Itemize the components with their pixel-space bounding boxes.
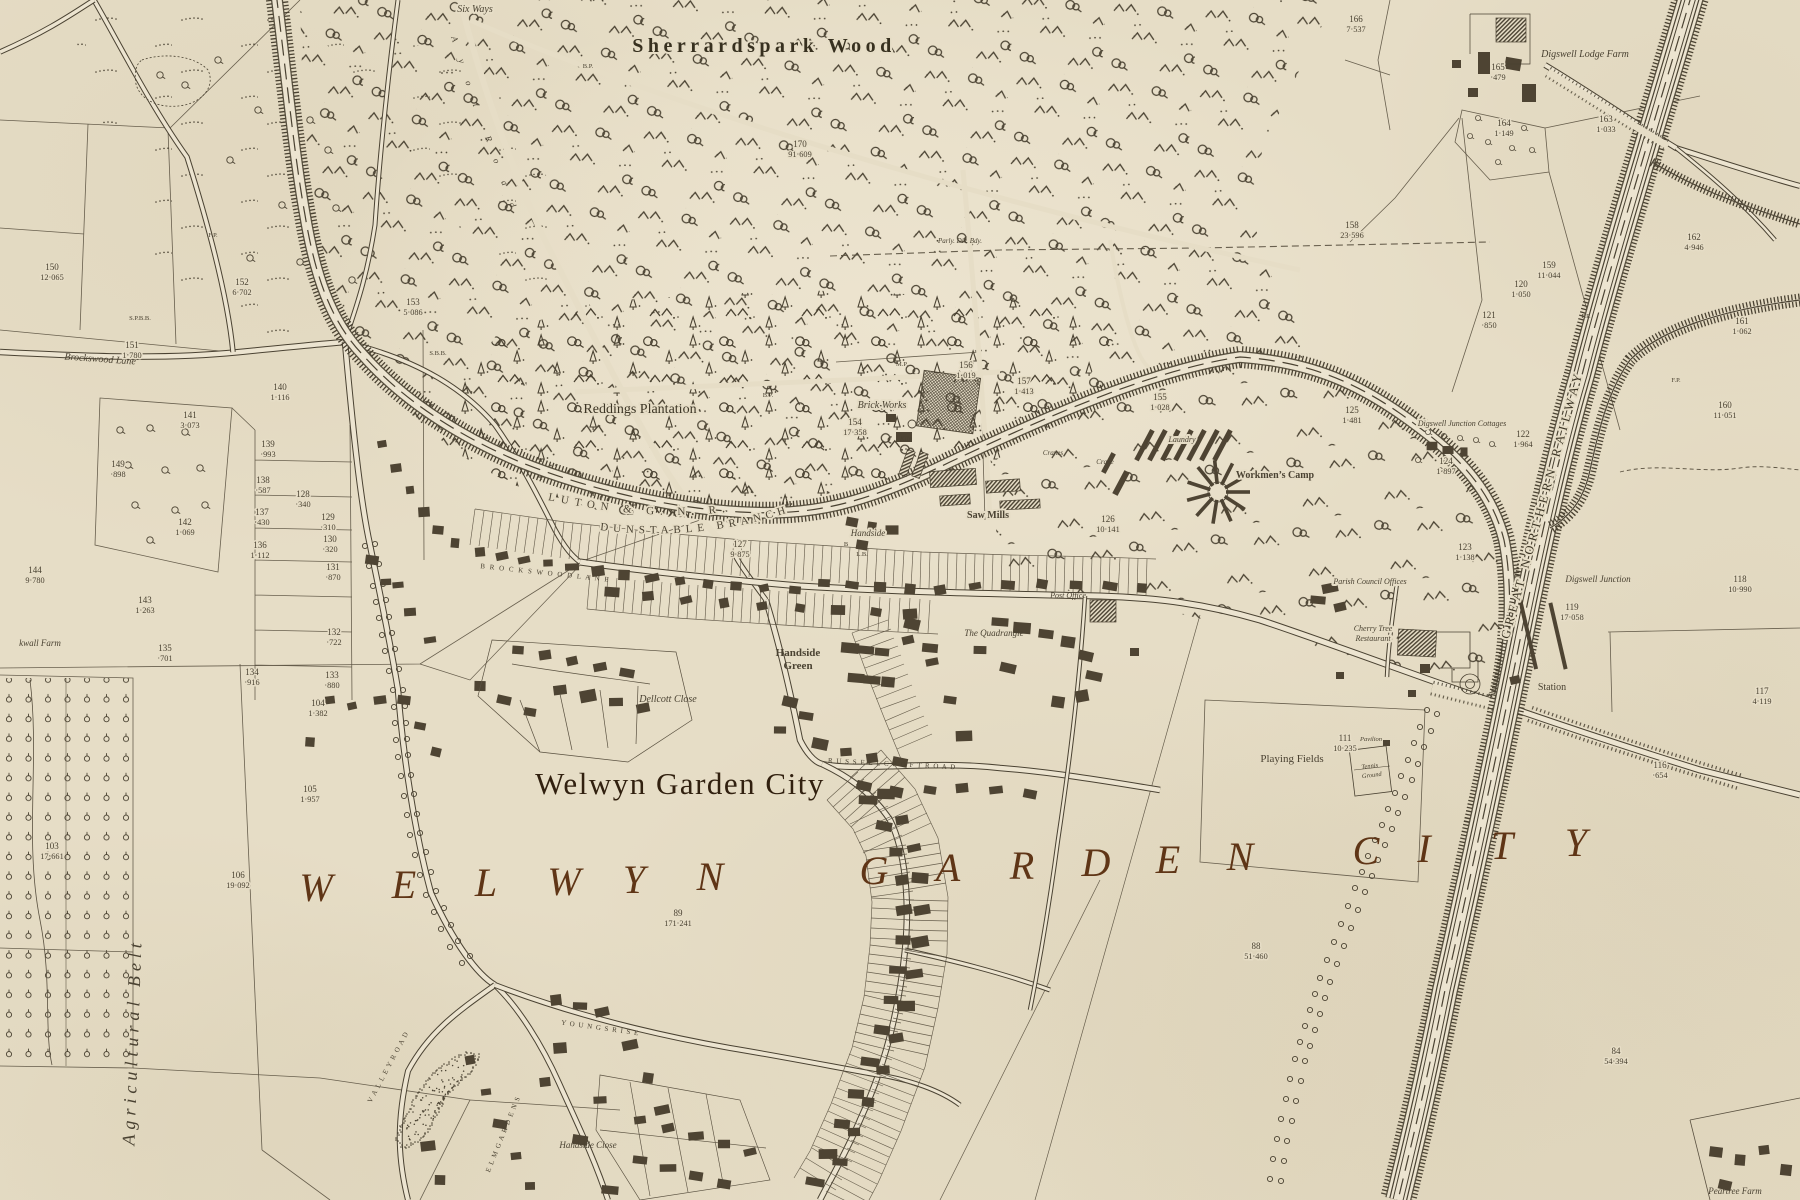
svg-text:W: W: [547, 859, 584, 904]
svg-text:161: 161: [1735, 316, 1749, 326]
svg-text:134: 134: [245, 667, 259, 677]
svg-text:152: 152: [235, 277, 249, 287]
svg-text:17·358: 17·358: [843, 428, 866, 437]
svg-text:143: 143: [138, 595, 152, 605]
svg-text:C: C: [1353, 828, 1381, 873]
svg-text:1·112: 1·112: [251, 551, 270, 560]
svg-text:1·263: 1·263: [135, 606, 154, 615]
svg-text:Parly. Div. Bdy.: Parly. Div. Bdy.: [937, 237, 982, 245]
svg-text:166: 166: [1349, 14, 1363, 24]
svg-text:103: 103: [45, 841, 59, 851]
svg-text:120: 120: [1514, 279, 1528, 289]
svg-text:Green: Green: [783, 660, 812, 672]
svg-text:L: L: [474, 860, 497, 905]
svg-text:Handside: Handside: [850, 528, 886, 538]
svg-text:140: 140: [273, 382, 287, 392]
svg-text:131: 131: [326, 562, 340, 572]
svg-text:·654: ·654: [1652, 771, 1667, 780]
svg-text:117: 117: [1755, 686, 1769, 696]
svg-text:89: 89: [674, 908, 684, 918]
svg-text:Pavilion: Pavilion: [1359, 736, 1382, 743]
svg-text:Playing Fields: Playing Fields: [1260, 753, 1323, 765]
svg-text:171·241: 171·241: [664, 919, 692, 928]
svg-text:1·964: 1·964: [1513, 440, 1532, 449]
svg-text:10·141: 10·141: [1096, 525, 1119, 534]
svg-text:1·033: 1·033: [1596, 125, 1615, 134]
svg-text:A: A: [933, 845, 961, 890]
svg-text:I: I: [1416, 826, 1432, 871]
svg-text:B.P.: B.P.: [763, 392, 774, 399]
svg-text:6·702: 6·702: [232, 288, 251, 297]
svg-text:·880: ·880: [324, 681, 339, 690]
svg-text:165: 165: [1491, 62, 1505, 72]
svg-text:11·051: 11·051: [1713, 411, 1736, 420]
svg-text:88: 88: [1252, 941, 1262, 951]
svg-text:Workmen’s Camp: Workmen’s Camp: [1236, 470, 1315, 481]
svg-text:·916: ·916: [244, 678, 259, 687]
svg-text:106: 106: [231, 870, 245, 880]
svg-text:B.P.: B.P.: [583, 63, 594, 70]
svg-text:11·044: 11·044: [1537, 271, 1560, 280]
svg-text:N: N: [1226, 834, 1256, 879]
svg-text:151: 151: [125, 340, 139, 350]
svg-text:·430: ·430: [254, 518, 269, 527]
svg-text:Restaurant: Restaurant: [1354, 634, 1391, 643]
svg-text:1·897: 1·897: [1436, 467, 1455, 476]
svg-text:1·382: 1·382: [308, 709, 327, 718]
svg-text:kwall Farm: kwall Farm: [19, 638, 61, 648]
svg-text:10·990: 10·990: [1728, 585, 1751, 594]
svg-text:T: T: [1491, 823, 1516, 868]
svg-text:17·058: 17·058: [1560, 613, 1583, 622]
svg-text:158: 158: [1345, 220, 1359, 230]
svg-text:160: 160: [1718, 400, 1732, 410]
svg-text:142: 142: [178, 517, 192, 527]
svg-text:130: 130: [323, 534, 337, 544]
svg-text:·340: ·340: [295, 500, 310, 509]
svg-text:1·028: 1·028: [1150, 403, 1169, 412]
svg-text:51·460: 51·460: [1244, 952, 1267, 961]
svg-text:·993: ·993: [260, 450, 275, 459]
svg-text:111: 111: [1339, 733, 1352, 743]
svg-text:·587: ·587: [255, 486, 270, 495]
svg-text:1·069: 1·069: [175, 528, 194, 537]
svg-text:132: 132: [327, 627, 341, 637]
svg-text:Laundry: Laundry: [1167, 435, 1196, 444]
svg-text:The Quadrangle: The Quadrangle: [964, 628, 1023, 638]
svg-text:149: 149: [111, 459, 125, 469]
svg-text:17·661: 17·661: [40, 852, 63, 861]
svg-text:·870: ·870: [325, 573, 340, 582]
svg-text:Saw Mills: Saw Mills: [967, 510, 1009, 521]
svg-text:·898: ·898: [110, 470, 125, 479]
svg-text:E: E: [391, 862, 416, 907]
svg-text:136: 136: [253, 540, 267, 550]
svg-text:119: 119: [1565, 602, 1579, 612]
svg-text:1·050: 1·050: [1511, 290, 1530, 299]
svg-text:133: 133: [325, 670, 339, 680]
svg-text:Reddings Plantation: Reddings Plantation: [583, 402, 696, 417]
svg-text:12·065: 12·065: [40, 273, 63, 282]
svg-text:S.B.B.: S.B.B.: [429, 350, 447, 357]
svg-text:144: 144: [28, 565, 42, 575]
svg-text:1·481: 1·481: [1342, 416, 1361, 425]
svg-text:4·119: 4·119: [1753, 697, 1772, 706]
svg-text:Crane: Crane: [1096, 458, 1114, 466]
svg-text:Digswell Junction Cottages: Digswell Junction Cottages: [1417, 419, 1506, 428]
svg-text:R: R: [1009, 843, 1034, 888]
svg-text:54·394: 54·394: [1604, 1057, 1627, 1066]
svg-text:B: B: [844, 541, 849, 548]
svg-text:Cherry Tree: Cherry Tree: [1354, 624, 1393, 633]
svg-text:G: G: [860, 848, 889, 893]
svg-text:124: 124: [1439, 456, 1453, 466]
svg-text:·701: ·701: [157, 654, 172, 663]
svg-text:3·073: 3·073: [180, 421, 199, 430]
svg-text:·850: ·850: [1481, 321, 1496, 330]
svg-text:9·875: 9·875: [730, 550, 749, 559]
svg-text:153: 153: [406, 297, 420, 307]
svg-text:Kiln: Kiln: [899, 435, 913, 443]
svg-text:D: D: [1081, 840, 1111, 885]
svg-text:91·609: 91·609: [788, 150, 811, 159]
svg-text:150: 150: [45, 262, 59, 272]
svg-text:105: 105: [303, 784, 317, 794]
svg-text:·320: ·320: [322, 545, 337, 554]
svg-text:5·086: 5·086: [403, 308, 422, 317]
svg-text:23·596: 23·596: [1340, 231, 1363, 240]
svg-text:1·019: 1·019: [956, 371, 975, 380]
svg-text:Y: Y: [623, 857, 649, 902]
svg-text:127: 127: [733, 539, 747, 549]
svg-text:Handside Close: Handside Close: [558, 1140, 616, 1150]
svg-text:Parish Council Offices: Parish Council Offices: [1332, 577, 1406, 586]
svg-text:·479: ·479: [1490, 73, 1505, 82]
svg-text:1·116: 1·116: [271, 393, 290, 402]
svg-text:Station: Station: [1538, 682, 1566, 693]
svg-text:1·413: 1·413: [1014, 387, 1033, 396]
svg-text:Handside: Handside: [776, 647, 821, 659]
svg-text:122: 122: [1516, 429, 1530, 439]
svg-text:162: 162: [1687, 232, 1701, 242]
svg-text:Brick Works: Brick Works: [858, 400, 907, 411]
svg-text:F.P.: F.P.: [208, 232, 218, 239]
svg-text:4·946: 4·946: [1684, 243, 1703, 252]
svg-text:159: 159: [1542, 260, 1556, 270]
svg-text:Digswell Junction: Digswell Junction: [1564, 574, 1631, 584]
svg-text:123: 123: [1458, 542, 1472, 552]
svg-text:1·957: 1·957: [300, 795, 319, 804]
svg-text:1·138: 1·138: [1455, 553, 1474, 562]
svg-text:Peartree Farm: Peartree Farm: [1707, 1186, 1762, 1196]
svg-text:118: 118: [1733, 574, 1747, 584]
svg-text:L.B.: L.B.: [856, 551, 868, 558]
svg-text:141: 141: [183, 410, 197, 420]
svg-text:F.P.: F.P.: [1671, 377, 1681, 384]
svg-text:7·537: 7·537: [1346, 25, 1365, 34]
svg-text:Cranes: Cranes: [1043, 449, 1064, 457]
svg-text:116: 116: [1653, 760, 1667, 770]
svg-text:156: 156: [959, 360, 973, 370]
svg-text:10·235: 10·235: [1333, 744, 1356, 753]
svg-text:137: 137: [255, 507, 269, 517]
svg-text:1·062: 1·062: [1732, 327, 1751, 336]
svg-text:Digswell Lodge Farm: Digswell Lodge Farm: [1540, 49, 1629, 60]
svg-text:M.P.: M.P.: [896, 361, 908, 368]
svg-text:Welwyn Garden City: Welwyn Garden City: [535, 766, 825, 801]
svg-text:129: 129: [321, 512, 335, 522]
svg-text:104: 104: [311, 698, 325, 708]
svg-text:Sherrardspark Wood: Sherrardspark Wood: [632, 35, 895, 57]
svg-text:Six Ways: Six Ways: [457, 4, 493, 15]
svg-text:W: W: [299, 865, 336, 910]
svg-text:139: 139: [261, 439, 275, 449]
svg-text:S.P.B.B.: S.P.B.B.: [129, 315, 151, 322]
svg-text:163: 163: [1599, 114, 1613, 124]
svg-text:1·780: 1·780: [122, 351, 141, 360]
svg-text:F.P.: F.P.: [1581, 313, 1591, 320]
svg-text:84: 84: [1612, 1046, 1622, 1056]
svg-text:138: 138: [256, 475, 270, 485]
svg-text:125: 125: [1345, 405, 1359, 415]
svg-text:1·149: 1·149: [1494, 129, 1513, 138]
svg-text:E: E: [1155, 837, 1180, 882]
svg-text:N: N: [696, 854, 726, 899]
svg-text:126: 126: [1101, 514, 1115, 524]
svg-text:157: 157: [1017, 376, 1031, 386]
svg-text:Y: Y: [1565, 820, 1591, 865]
svg-text:·310: ·310: [320, 523, 335, 532]
svg-text:154: 154: [848, 417, 862, 427]
svg-text:Post Office: Post Office: [1049, 591, 1086, 600]
svg-text:Dellcott Close: Dellcott Close: [638, 694, 697, 705]
svg-text:135: 135: [158, 643, 172, 653]
svg-text:128: 128: [296, 489, 310, 499]
svg-text:170: 170: [793, 139, 807, 149]
svg-text:9·780: 9·780: [25, 576, 44, 585]
svg-text:155: 155: [1153, 392, 1167, 402]
svg-text:·722: ·722: [326, 638, 341, 647]
svg-text:19·092: 19·092: [226, 881, 249, 890]
svg-text:164: 164: [1497, 118, 1511, 128]
svg-text:121: 121: [1482, 310, 1496, 320]
